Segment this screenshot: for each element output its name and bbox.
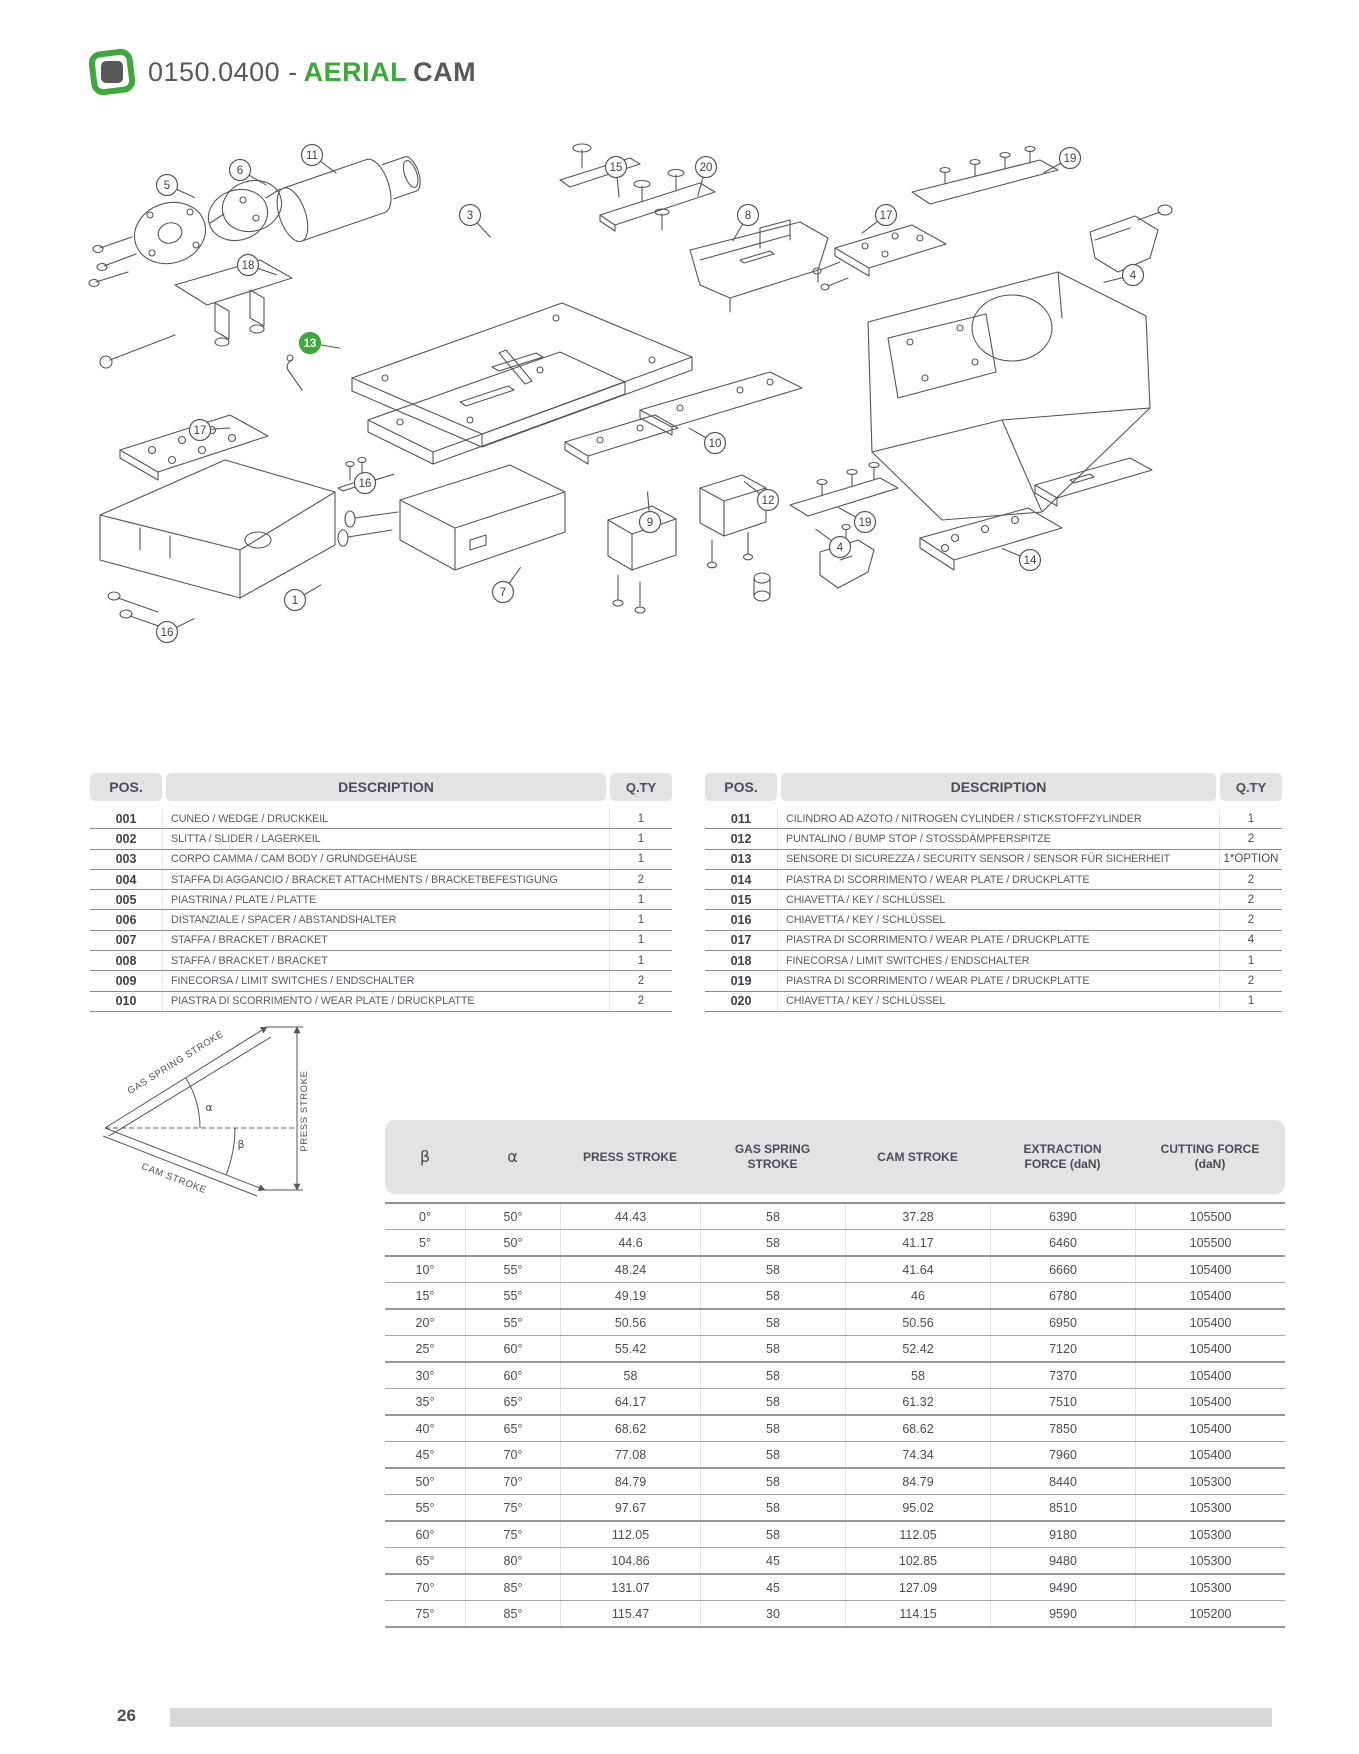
part-row-016: 016CHIAVETTA / KEY / SCHLÜSSEL2 <box>705 910 1282 930</box>
spec-row-10°: 10°55°48.245841.646660105400 <box>385 1257 1285 1283</box>
spec-cell: 44.43 <box>560 1204 700 1229</box>
spec-col-gas-spring-stroke: GAS SPRING STROKE <box>700 1142 845 1172</box>
part-nitrogen-cylinder <box>271 145 427 245</box>
qty-cell: 1 <box>1219 951 1282 970</box>
spec-cell: 50° <box>465 1230 560 1255</box>
spec-row-20°: 20°55°50.565850.566950105400 <box>385 1310 1285 1336</box>
spec-cell: 6950 <box>990 1310 1135 1335</box>
qty-cell: 1 <box>609 850 672 869</box>
spec-cell: 7370 <box>990 1363 1135 1388</box>
description-cell: CHIAVETTA / KEY / SCHLÜSSEL <box>777 890 1219 909</box>
description-cell: PIASTRA DI SCORRIMENTO / WEAR PLATE / DR… <box>777 870 1219 889</box>
qty-cell: 2 <box>1219 890 1282 909</box>
pos-cell: 012 <box>705 832 777 846</box>
callout-number: 17 <box>880 210 893 222</box>
spec-col-cam-stroke: CAM STROKE <box>845 1150 990 1165</box>
spec-cell: 105400 <box>1135 1336 1285 1361</box>
spec-cell: 55.42 <box>560 1336 700 1361</box>
spec-cell: 112.05 <box>560 1522 700 1547</box>
callout-1: 1 <box>285 585 321 611</box>
description-cell: CUNEO / WEDGE / DRUCKKEIL <box>162 809 609 828</box>
part-wear-plate-small <box>565 415 678 464</box>
page-title: 0150.0400 -AERIALCAM <box>148 57 476 88</box>
callout-number: 20 <box>700 162 713 174</box>
alpha-angle-label: α <box>205 1101 212 1114</box>
spec-cell: 40° <box>385 1416 465 1441</box>
callout-15: 15 <box>606 157 627 197</box>
spec-cell: 58 <box>700 1257 845 1282</box>
spec-cell: 102.85 <box>845 1548 990 1573</box>
pos-cell: 013 <box>705 852 777 866</box>
spec-cell: 46 <box>845 1283 990 1308</box>
callout-number: 8 <box>745 210 751 222</box>
qty-cell: 2 <box>1219 870 1282 889</box>
spec-cell: 6780 <box>990 1283 1135 1308</box>
spec-cell: 7120 <box>990 1336 1135 1361</box>
spec-row-35°: 35°65°64.175861.327510105400 <box>385 1389 1285 1416</box>
part-row-005: 005PIASTRINA / PLATE / PLATTE1 <box>90 890 672 910</box>
callout-number: 9 <box>647 517 653 529</box>
part-row-017: 017PIASTRA DI SCORRIMENTO / WEAR PLATE /… <box>705 931 1282 951</box>
parts-table-left: POS. DESCRIPTION Q.TY 001CUNEO / WEDGE /… <box>90 773 672 1012</box>
spec-row-50°: 50°70°84.795884.798440105300 <box>385 1469 1285 1495</box>
qty-cell: 2 <box>1219 910 1282 929</box>
spec-cell: 105400 <box>1135 1389 1285 1414</box>
spec-cell: 58 <box>700 1336 845 1361</box>
spec-cell: 58 <box>700 1495 845 1520</box>
callout-layer: 5611152038171941813171610129197116414 <box>157 145 1144 643</box>
spec-cell: 58 <box>700 1310 845 1335</box>
pos-cell: 011 <box>705 812 777 826</box>
part-row-019: 019PIASTRA DI SCORRIMENTO / WEAR PLATE /… <box>705 971 1282 991</box>
spec-cell: 84.79 <box>845 1469 990 1494</box>
spec-cell: 127.09 <box>845 1575 990 1600</box>
callout-5: 5 <box>157 175 195 198</box>
spec-cell: 105300 <box>1135 1575 1285 1600</box>
spec-cell: 8440 <box>990 1469 1135 1494</box>
part-row-012: 012PUNTALINO / BUMP STOP / STOSSDÄMPFERS… <box>705 829 1282 849</box>
spec-cell: 105300 <box>1135 1495 1285 1520</box>
callout-number: 3 <box>467 210 473 222</box>
spec-cell: 68.62 <box>845 1416 990 1441</box>
pos-column-header: POS. <box>705 773 777 801</box>
qty-cell: 2 <box>1219 829 1282 848</box>
spec-cell: 41.64 <box>845 1257 990 1282</box>
description-cell: STAFFA / BRACKET / BRACKET <box>162 951 609 970</box>
part-bracket-4a <box>1090 205 1172 272</box>
qty-column-header: Q.TY <box>1220 773 1282 801</box>
spec-cell: 104.86 <box>560 1548 700 1573</box>
pos-cell: 008 <box>90 954 162 968</box>
part-row-014: 014PIASTRA DI SCORRIMENTO / WEAR PLATE /… <box>705 870 1282 890</box>
description-cell: STAFFA / BRACKET / BRACKET <box>162 931 609 950</box>
spec-cell: 68.62 <box>560 1416 700 1441</box>
callout-number: 10 <box>709 438 722 450</box>
callout-number: 13 <box>304 338 317 350</box>
spec-cell: 105400 <box>1135 1283 1285 1308</box>
callout-18: 18 <box>238 255 277 276</box>
spec-cell: 112.05 <box>845 1522 990 1547</box>
page-number: 26 <box>117 1706 136 1726</box>
spec-cell: 9490 <box>990 1575 1135 1600</box>
pos-cell: 016 <box>705 913 777 927</box>
pos-cell: 015 <box>705 893 777 907</box>
product-name-accent: AERIAL <box>304 57 408 87</box>
part-row-013: 013SENSORE DI SICUREZZA / SECURITY SENSO… <box>705 850 1282 870</box>
description-cell: PIASTRA DI SCORRIMENTO / WEAR PLATE / DR… <box>162 992 609 1011</box>
pos-cell: 002 <box>90 832 162 846</box>
page-footer: 26 <box>0 1700 1359 1732</box>
qty-cell: 2 <box>609 992 672 1011</box>
spec-cell: 105400 <box>1135 1416 1285 1441</box>
spec-cell: 105400 <box>1135 1257 1285 1282</box>
spec-table-rows: 0°50°44.435837.2863901055005°50°44.65841… <box>385 1202 1285 1628</box>
pos-cell: 019 <box>705 974 777 988</box>
spec-row-15°: 15°55°49.1958466780105400 <box>385 1283 1285 1310</box>
pos-cell: 010 <box>90 994 162 1008</box>
product-code: 0150.0400 - <box>148 57 298 87</box>
callout-17: 17 <box>862 205 896 234</box>
spec-cell: 50° <box>465 1204 560 1229</box>
pos-cell: 007 <box>90 933 162 947</box>
description-cell: CILINDRO AD AZOTO / NITROGEN CYLINDER / … <box>777 809 1219 828</box>
description-column-header: DESCRIPTION <box>781 773 1216 801</box>
description-cell: PUNTALINO / BUMP STOP / STOSSDÄMPFERSPIT… <box>777 829 1219 848</box>
spec-cell: 105300 <box>1135 1469 1285 1494</box>
callout-number: 1 <box>292 595 298 607</box>
qty-cell: 2 <box>609 870 672 889</box>
press-stroke-label: PRESS STROKE <box>299 1070 310 1151</box>
spec-cell: 45 <box>700 1548 845 1573</box>
description-column-header: DESCRIPTION <box>166 773 606 801</box>
pos-cell: 001 <box>90 812 162 826</box>
spec-cell: 58 <box>560 1363 700 1388</box>
part-bracket-8 <box>690 220 828 312</box>
spec-cell: 58 <box>700 1522 845 1547</box>
qty-cell: 1 <box>609 890 672 909</box>
spec-cell: 58 <box>700 1389 845 1414</box>
spec-cell: 75° <box>385 1601 465 1626</box>
spec-cell: 41.17 <box>845 1230 990 1255</box>
part-row-015: 015CHIAVETTA / KEY / SCHLÜSSEL2 <box>705 890 1282 910</box>
pos-cell: 009 <box>90 974 162 988</box>
callout-3: 3 <box>460 205 491 238</box>
part-wear-plate-17a <box>813 225 946 290</box>
spec-cell: 5° <box>385 1230 465 1255</box>
spec-cell: 85° <box>465 1601 560 1626</box>
callout-number: 7 <box>500 587 506 599</box>
callout-7: 7 <box>493 568 521 603</box>
spec-row-75°: 75°85°115.4730114.159590105200 <box>385 1601 1285 1628</box>
callout-number: 18 <box>242 260 255 272</box>
part-row-004: 004STAFFA DI AGGANCIO / BRACKET ATTACHME… <box>90 870 672 890</box>
part-row-001: 001CUNEO / WEDGE / DRUCKKEIL1 <box>90 809 672 829</box>
spec-cell: 85° <box>465 1575 560 1600</box>
pos-cell: 018 <box>705 954 777 968</box>
description-cell: SENSORE DI SICUREZZA / SECURITY SENSOR /… <box>777 850 1219 869</box>
spec-table-header: β α PRESS STROKE GAS SPRING STROKE CAM S… <box>385 1120 1285 1194</box>
spec-cell: 0° <box>385 1204 465 1229</box>
spec-cell: 20° <box>385 1310 465 1335</box>
spec-col-press-stroke: PRESS STROKE <box>560 1150 700 1165</box>
product-name: CAM <box>413 57 476 87</box>
spec-cell: 9590 <box>990 1601 1135 1626</box>
callout-number: 15 <box>610 162 623 174</box>
footer-bar <box>170 1708 1272 1727</box>
part-wear-plate-10 <box>640 372 802 435</box>
beta-angle-label: β <box>237 1138 244 1151</box>
qty-cell: 1 <box>609 951 672 970</box>
callout-16: 16 <box>157 619 194 643</box>
brand-logo-square <box>101 61 123 83</box>
spec-col-alpha: α <box>465 1147 560 1167</box>
qty-cell: 1 <box>609 829 672 848</box>
part-slider-assembly <box>100 415 335 598</box>
spec-row-30°: 30°60°5858587370105400 <box>385 1363 1285 1389</box>
spec-cell: 74.34 <box>845 1442 990 1467</box>
callout-number: 19 <box>859 517 872 529</box>
spec-cell: 55° <box>465 1310 560 1335</box>
spec-cell: 50.56 <box>560 1310 700 1335</box>
spec-cell: 6390 <box>990 1204 1135 1229</box>
part-pin-13 <box>287 355 302 390</box>
qty-column-header: Q.TY <box>610 773 672 801</box>
spec-cell: 75° <box>465 1522 560 1547</box>
spec-cell: 9180 <box>990 1522 1135 1547</box>
pos-cell: 006 <box>90 913 162 927</box>
parts-table-left-rows: 001CUNEO / WEDGE / DRUCKKEIL1002SLITTA /… <box>90 809 672 1012</box>
spec-cell: 6660 <box>990 1257 1135 1282</box>
spec-cell: 9480 <box>990 1548 1135 1573</box>
spec-cell: 49.19 <box>560 1283 700 1308</box>
spec-cell: 58 <box>845 1363 990 1388</box>
spec-cell: 8510 <box>990 1495 1135 1520</box>
callout-number: 5 <box>164 180 170 192</box>
pos-cell: 014 <box>705 873 777 887</box>
spec-cell: 45 <box>700 1575 845 1600</box>
callout-number: 12 <box>762 495 775 507</box>
callout-10: 10 <box>689 428 726 453</box>
spec-cell: 105400 <box>1135 1363 1285 1388</box>
pos-cell: 003 <box>90 852 162 866</box>
qty-cell: 2 <box>609 971 672 990</box>
part-row-020: 020CHIAVETTA / KEY / SCHLÜSSEL1 <box>705 992 1282 1012</box>
callout-11: 11 <box>302 145 337 173</box>
part-flange <box>89 193 214 286</box>
pos-column-header: POS. <box>90 773 162 801</box>
spec-cell: 7850 <box>990 1416 1135 1441</box>
spec-cell: 105500 <box>1135 1204 1285 1229</box>
spec-cell: 58 <box>700 1469 845 1494</box>
description-cell: PIASTRA DI SCORRIMENTO / WEAR PLATE / DR… <box>777 971 1219 990</box>
spec-cell: 61.32 <box>845 1389 990 1414</box>
spec-row-65°: 65°80°104.8645102.859480105300 <box>385 1548 1285 1575</box>
description-cell: PIASTRINA / PLATE / PLATTE <box>162 890 609 909</box>
brand-logo-icon <box>87 47 136 96</box>
callout-number: 6 <box>237 165 243 177</box>
part-row-007: 007STAFFA / BRACKET / BRACKET1 <box>90 931 672 951</box>
spec-cell: 30° <box>385 1363 465 1388</box>
part-row-003: 003CORPO CAMMA / CAM BODY / GRUNDGEHÄUSE… <box>90 850 672 870</box>
callout-number: 16 <box>161 627 174 639</box>
callout-9: 9 <box>640 492 661 532</box>
spec-col-beta: β <box>385 1147 465 1167</box>
spec-cell: 105300 <box>1135 1548 1285 1573</box>
spec-row-70°: 70°85°131.0745127.099490105300 <box>385 1575 1285 1601</box>
spec-cell: 15° <box>385 1283 465 1308</box>
part-top-bars <box>560 144 715 231</box>
spec-cell: 65° <box>465 1416 560 1441</box>
spec-cell: 7960 <box>990 1442 1135 1467</box>
parts-table-right-header: POS. DESCRIPTION Q.TY <box>705 773 1282 801</box>
spec-row-55°: 55°75°97.675895.028510105300 <box>385 1495 1285 1522</box>
spec-cell: 105500 <box>1135 1230 1285 1255</box>
spec-cell: 105300 <box>1135 1522 1285 1547</box>
qty-cell: 1 <box>609 910 672 929</box>
spec-col-extraction-force: EXTRACTION FORCE (daN) <box>990 1142 1135 1172</box>
spec-cell: 7510 <box>990 1389 1135 1414</box>
spec-row-40°: 40°65°68.625868.627850105400 <box>385 1416 1285 1442</box>
callout-number: 14 <box>1024 555 1037 567</box>
callout-20: 20 <box>696 157 717 196</box>
spec-table: β α PRESS STROKE GAS SPRING STROKE CAM S… <box>385 1120 1285 1628</box>
spec-cell: 70° <box>465 1442 560 1467</box>
spec-row-25°: 25°60°55.425852.427120105400 <box>385 1336 1285 1363</box>
spec-row-5°: 5°50°44.65841.176460105500 <box>385 1230 1285 1257</box>
qty-cell: 1 <box>609 931 672 950</box>
spec-cell: 55° <box>465 1257 560 1282</box>
pos-cell: 005 <box>90 893 162 907</box>
part-bracket-4b <box>820 525 874 589</box>
spec-cell: 48.24 <box>560 1257 700 1282</box>
spec-cell: 58 <box>700 1363 845 1388</box>
qty-cell: 4 <box>1219 931 1282 950</box>
qty-cell: 2 <box>1219 971 1282 990</box>
pos-cell: 017 <box>705 933 777 947</box>
spec-row-0°: 0°50°44.435837.286390105500 <box>385 1204 1285 1230</box>
spec-cell: 25° <box>385 1336 465 1361</box>
spec-row-60°: 60°75°112.0558112.059180105300 <box>385 1522 1285 1548</box>
part-spacer <box>202 173 289 248</box>
part-row-008: 008STAFFA / BRACKET / BRACKET1 <box>90 951 672 971</box>
spec-cell: 50° <box>385 1469 465 1494</box>
part-row-010: 010PIASTRA DI SCORRIMENTO / WEAR PLATE /… <box>90 992 672 1012</box>
spec-cell: 77.08 <box>560 1442 700 1467</box>
callout-number: 11 <box>306 150 318 162</box>
spec-cell: 70° <box>465 1469 560 1494</box>
description-cell: STAFFA DI AGGANCIO / BRACKET ATTACHMENTS… <box>162 870 609 889</box>
spec-cell: 55° <box>465 1283 560 1308</box>
qty-cell: 1 <box>1219 992 1282 1011</box>
exploded-diagram: 5611152038171941813171610129197116414 <box>0 120 1359 690</box>
callout-19: 19 <box>1044 148 1081 173</box>
spec-cell: 65° <box>385 1548 465 1573</box>
callout-number: 4 <box>1130 270 1137 282</box>
spec-cell: 52.42 <box>845 1336 990 1361</box>
part-row-002: 002SLITTA / SLIDER / LAGERKEIL1 <box>90 829 672 849</box>
description-cell: FINECORSA / LIMIT SWITCHES / ENDSCHALTER <box>162 971 609 990</box>
page-header: 0150.0400 -AERIALCAM <box>90 50 476 94</box>
parts-table-right: POS. DESCRIPTION Q.TY 011CILINDRO AD AZO… <box>705 773 1282 1012</box>
callout-16: 16 <box>355 473 394 494</box>
part-wedge-right <box>1035 458 1152 506</box>
spec-cell: 37.28 <box>845 1204 990 1229</box>
description-cell: CORPO CAMMA / CAM BODY / GRUNDGEHÄUSE <box>162 850 609 869</box>
spec-col-cutting-force: CUTTING FORCE (daN) <box>1135 1142 1285 1172</box>
spec-cell: 30 <box>700 1601 845 1626</box>
description-cell: FINECORSA / LIMIT SWITCHES / ENDSCHALTER <box>777 951 1219 970</box>
spec-cell: 105400 <box>1135 1310 1285 1335</box>
cam-stroke-label: CAM STROKE <box>140 1161 208 1196</box>
description-cell: SLITTA / SLIDER / LAGERKEIL <box>162 829 609 848</box>
spec-cell: 95.02 <box>845 1495 990 1520</box>
spec-cell: 115.47 <box>560 1601 700 1626</box>
spec-cell: 60° <box>465 1363 560 1388</box>
spec-cell: 55° <box>385 1495 465 1520</box>
spec-cell: 45° <box>385 1442 465 1467</box>
spec-cell: 64.17 <box>560 1389 700 1414</box>
part-row-018: 018FINECORSA / LIMIT SWITCHES / ENDSCHAL… <box>705 951 1282 971</box>
pos-cell: 004 <box>90 873 162 887</box>
callout-4: 4 <box>816 529 851 557</box>
callout-number: 4 <box>837 542 844 554</box>
callout-13: 13 <box>300 333 340 354</box>
part-row-006: 006DISTANZIALE / SPACER / ABSTANDSHALTER… <box>90 910 672 930</box>
spec-cell: 58 <box>700 1283 845 1308</box>
spec-cell: 65° <box>465 1389 560 1414</box>
spec-cell: 105200 <box>1135 1601 1285 1626</box>
spec-cell: 97.67 <box>560 1495 700 1520</box>
parts-table-left-header: POS. DESCRIPTION Q.TY <box>90 773 672 801</box>
parts-table-right-rows: 011CILINDRO AD AZOTO / NITROGEN CYLINDER… <box>705 809 1282 1012</box>
description-cell: DISTANZIALE / SPACER / ABSTANDSHALTER <box>162 910 609 929</box>
spec-cell: 75° <box>465 1495 560 1520</box>
pos-cell: 020 <box>705 994 777 1008</box>
qty-cell: 1 <box>1219 809 1282 828</box>
spec-cell: 105400 <box>1135 1442 1285 1467</box>
callout-14: 14 <box>1002 549 1040 571</box>
callout-number: 19 <box>1064 153 1077 165</box>
spec-cell: 58 <box>700 1442 845 1467</box>
spec-cell: 80° <box>465 1548 560 1573</box>
callout-number: 16 <box>359 478 372 490</box>
spec-cell: 44.6 <box>560 1230 700 1255</box>
description-cell: CHIAVETTA / KEY / SCHLÜSSEL <box>777 910 1219 929</box>
spec-cell: 84.79 <box>560 1469 700 1494</box>
spec-cell: 60° <box>385 1522 465 1547</box>
part-bar-19b <box>790 463 898 517</box>
spec-cell: 6460 <box>990 1230 1135 1255</box>
spec-cell: 58 <box>700 1416 845 1441</box>
spec-cell: 114.15 <box>845 1601 990 1626</box>
spec-row-45°: 45°70°77.085874.347960105400 <box>385 1442 1285 1469</box>
spec-cell: 131.07 <box>560 1575 700 1600</box>
part-row-009: 009FINECORSA / LIMIT SWITCHES / ENDSCHAL… <box>90 971 672 991</box>
callout-17: 17 <box>190 420 230 441</box>
gas-spring-stroke-label: GAS SPRING STROKE <box>126 1029 226 1097</box>
part-sub-plate <box>368 352 625 464</box>
description-cell: PIASTRA DI SCORRIMENTO / WEAR PLATE / DR… <box>777 931 1219 950</box>
part-row-011: 011CILINDRO AD AZOTO / NITROGEN CYLINDER… <box>705 809 1282 829</box>
qty-cell: 1*OPTION <box>1219 850 1282 869</box>
part-bracket-18 <box>100 260 292 368</box>
callout-number: 17 <box>194 425 207 437</box>
spec-cell: 58 <box>700 1204 845 1229</box>
spec-cell: 50.56 <box>845 1310 990 1335</box>
spec-cell: 35° <box>385 1389 465 1414</box>
part-bar-19a <box>912 147 1058 205</box>
qty-cell: 1 <box>609 809 672 828</box>
